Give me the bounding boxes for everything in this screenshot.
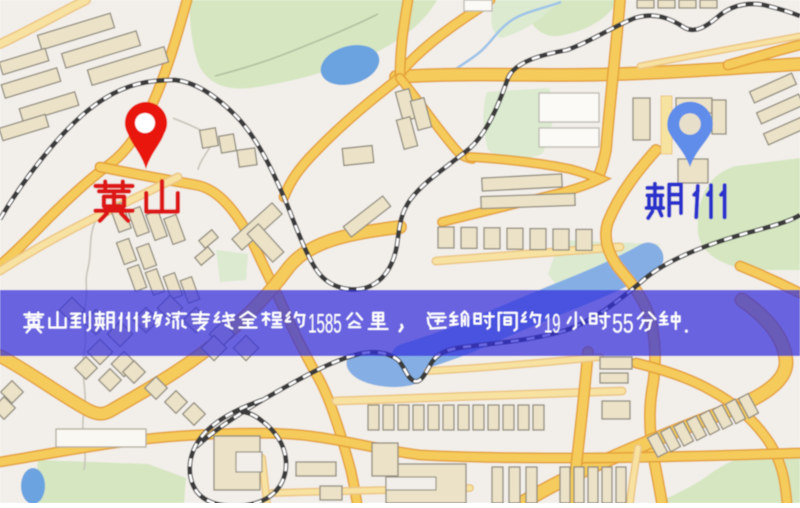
svg-text:1585: 1585 (308, 309, 342, 339)
svg-text:55: 55 (612, 309, 634, 339)
svg-text:.: . (683, 309, 690, 339)
svg-text:19: 19 (544, 309, 561, 339)
